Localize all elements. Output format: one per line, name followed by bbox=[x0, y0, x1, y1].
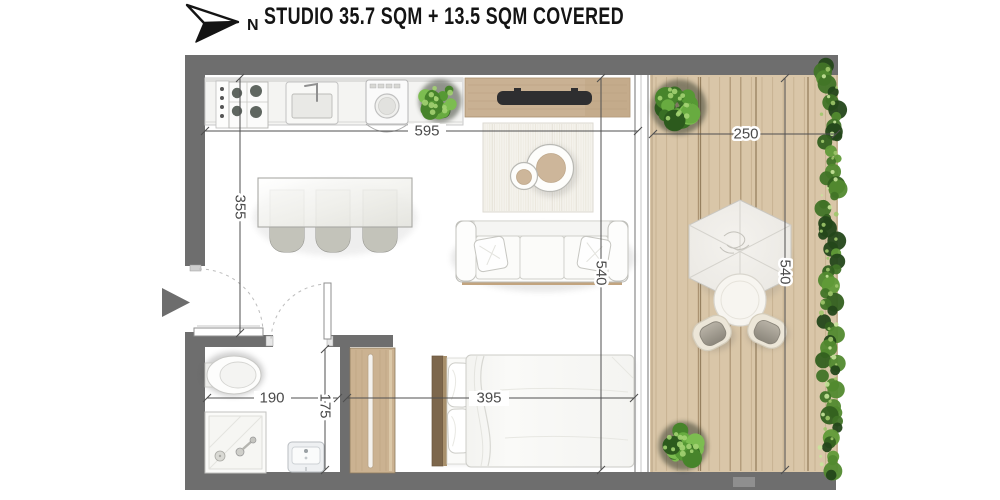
wall-bathroom-right bbox=[340, 347, 350, 472]
hedge-highlight bbox=[828, 291, 833, 296]
dim-bedroom-width: 395 bbox=[476, 390, 501, 407]
hedge-highlight bbox=[819, 310, 824, 315]
hob-knob bbox=[220, 105, 224, 109]
doors bbox=[162, 269, 331, 341]
dim-bathroom-width: 190 bbox=[259, 390, 284, 407]
terrace-glazing bbox=[635, 75, 648, 472]
plant-highlight bbox=[666, 116, 671, 121]
hedge-highlight bbox=[825, 416, 830, 421]
dim-interior-width: 595 bbox=[414, 123, 439, 140]
hedge-highlight bbox=[821, 140, 824, 143]
bathroom bbox=[202, 352, 324, 473]
bed-headboard-shelf bbox=[443, 356, 447, 466]
plant-highlight bbox=[679, 445, 685, 451]
sofa-pillow bbox=[473, 236, 508, 273]
plant-highlight bbox=[442, 105, 447, 110]
hedge-highlight bbox=[834, 377, 837, 380]
wardrobe-icon bbox=[350, 348, 395, 473]
plant-highlight bbox=[693, 444, 699, 450]
sofa-backrest bbox=[474, 221, 610, 236]
entry-door-leaf bbox=[194, 328, 263, 336]
north-arrow-lower bbox=[196, 22, 238, 42]
washbasin-icon bbox=[288, 442, 324, 472]
hedge-highlight bbox=[818, 445, 823, 450]
hedge-highlight bbox=[831, 101, 836, 106]
hedge-highlight bbox=[825, 382, 830, 387]
hob-knob bbox=[220, 87, 224, 91]
hedge-highlight bbox=[831, 157, 834, 160]
door-frame-cap bbox=[190, 265, 201, 271]
kitchen-sink-icon bbox=[286, 82, 338, 124]
plant-highlight bbox=[658, 96, 663, 101]
coffee-table-large-top bbox=[537, 154, 566, 183]
wall-top bbox=[185, 55, 838, 75]
planter bbox=[659, 422, 708, 471]
north-arrow-icon bbox=[187, 5, 238, 42]
dim-interior-depth: 540 bbox=[593, 260, 610, 285]
hedge-highlight bbox=[822, 223, 826, 227]
wardrobe-edge bbox=[389, 350, 392, 471]
hedge-highlight bbox=[820, 462, 824, 466]
bed-headboard bbox=[432, 356, 443, 466]
hob-burner bbox=[232, 88, 242, 98]
basin-faucet bbox=[304, 449, 308, 453]
hedge-highlight bbox=[826, 257, 829, 260]
hedge-highlight bbox=[835, 363, 837, 365]
hedge-highlight bbox=[835, 284, 838, 287]
hedge-foliage bbox=[818, 230, 828, 240]
hedge-foliage bbox=[822, 442, 832, 452]
hedge-foliage bbox=[826, 470, 837, 481]
plant-highlight bbox=[447, 90, 453, 96]
hob-knob bbox=[220, 114, 224, 118]
plant-highlight bbox=[672, 89, 678, 95]
hedge-highlight bbox=[834, 151, 838, 155]
dining-table-icon bbox=[258, 178, 412, 227]
hedge-highlight bbox=[831, 170, 835, 174]
wall-left-upper bbox=[185, 55, 205, 266]
dim-bathroom-depth: 175 bbox=[317, 393, 334, 418]
door-swing-arc bbox=[199, 269, 263, 333]
hedge-highlight bbox=[828, 327, 831, 330]
hedge-highlight bbox=[831, 437, 834, 440]
wall-bathroom-top bbox=[205, 335, 273, 347]
hedge-highlight bbox=[825, 249, 829, 253]
plant-highlight bbox=[422, 100, 428, 106]
plant-highlight bbox=[684, 113, 690, 119]
hedge-highlight bbox=[834, 237, 837, 240]
wall-left-lower bbox=[185, 332, 205, 490]
washing-machine-icon bbox=[366, 80, 408, 132]
hedge-highlight bbox=[833, 121, 836, 124]
hedge-highlight bbox=[826, 187, 829, 190]
bed-icon bbox=[432, 355, 634, 467]
plant-highlight bbox=[674, 432, 678, 436]
coffee-table-small-top bbox=[517, 170, 532, 185]
hedge-highlight bbox=[821, 300, 825, 304]
toilet-seat bbox=[220, 362, 256, 388]
wall-wardrobe-cap bbox=[327, 335, 393, 347]
hedge-highlight bbox=[826, 275, 829, 278]
hedge-foliage bbox=[830, 192, 839, 201]
entrance-arrow-icon bbox=[162, 288, 190, 317]
hedge-highlight bbox=[820, 230, 823, 233]
hedge-highlight bbox=[821, 194, 823, 196]
hedge-highlight bbox=[827, 95, 830, 98]
plant-highlight bbox=[667, 435, 672, 440]
hedge-highlight bbox=[822, 74, 826, 78]
hedge-highlight bbox=[826, 268, 830, 272]
hedge-highlight bbox=[826, 67, 831, 72]
door-swing-arc bbox=[271, 284, 328, 341]
door-frame-cap bbox=[266, 336, 273, 346]
north-label: N bbox=[247, 17, 259, 34]
hedge-highlight bbox=[835, 86, 838, 89]
dim-terrace-width: 250 bbox=[733, 126, 758, 143]
wall-bottom-tab bbox=[733, 477, 755, 487]
hedge-foliage bbox=[827, 306, 837, 316]
tv-body bbox=[497, 91, 592, 105]
hedge-highlight bbox=[834, 322, 839, 327]
plan-title: STUDIO 35.7 SQM + 13.5 SQM COVERED bbox=[264, 3, 624, 30]
hob-burner bbox=[250, 85, 262, 97]
plant-highlight bbox=[676, 112, 681, 117]
floor-plan-drawing: N STUDIO 35.7 SQM + 13.5 SQM COVERED bbox=[0, 0, 1000, 500]
counter-shadow bbox=[205, 78, 463, 82]
plant-highlight bbox=[434, 97, 439, 102]
sofa-cushion bbox=[520, 236, 564, 279]
hedge-highlight bbox=[820, 113, 823, 116]
plant-highlight bbox=[690, 449, 694, 453]
hedge-foliage bbox=[815, 352, 831, 368]
hedge-foliage bbox=[816, 370, 829, 383]
plant-highlight bbox=[668, 88, 672, 92]
plant-highlight bbox=[429, 92, 434, 97]
plant-highlight bbox=[430, 109, 436, 115]
header: N STUDIO 35.7 SQM + 13.5 SQM COVERED bbox=[187, 3, 624, 42]
hob-knob bbox=[220, 96, 224, 100]
shower-icon bbox=[205, 412, 266, 473]
plant-highlight bbox=[671, 447, 675, 451]
sofa-armrest bbox=[608, 221, 628, 281]
plant-highlight bbox=[683, 103, 687, 107]
kitchen-hob-icon bbox=[216, 81, 268, 128]
bedroom bbox=[350, 348, 634, 473]
hedge-foliage bbox=[830, 365, 840, 375]
plant-highlight bbox=[686, 444, 691, 449]
plant-highlight bbox=[429, 102, 435, 108]
plant-highlight bbox=[663, 446, 667, 450]
bed-duvet bbox=[466, 355, 634, 467]
sink-basin bbox=[292, 94, 332, 118]
planter bbox=[651, 79, 706, 134]
bathroom-door-leaf bbox=[324, 283, 331, 339]
plant-highlight bbox=[668, 93, 674, 99]
hedge-highlight bbox=[828, 205, 832, 209]
north-arrow-upper bbox=[187, 5, 238, 23]
hedge-highlight bbox=[829, 400, 832, 403]
wardrobe-divider bbox=[368, 354, 373, 468]
hedge-highlight bbox=[823, 427, 827, 431]
plant-highlight bbox=[680, 451, 686, 457]
dim-living-depth: 355 bbox=[232, 194, 249, 219]
dining-set bbox=[258, 178, 412, 252]
plant-foliage bbox=[664, 110, 686, 132]
hedge-highlight bbox=[819, 455, 822, 458]
plant-highlight bbox=[432, 86, 437, 91]
plant-highlight bbox=[680, 93, 685, 98]
dim-terrace-depth: 540 bbox=[777, 259, 794, 284]
hedge-highlight bbox=[824, 394, 829, 399]
hob-burner bbox=[250, 106, 262, 118]
hob-burner bbox=[232, 106, 242, 116]
plant-highlight bbox=[682, 435, 687, 440]
hedge-highlight bbox=[828, 337, 833, 342]
sofa-armrest bbox=[456, 221, 476, 281]
hedge-highlight bbox=[834, 177, 838, 181]
hedge-highlight bbox=[828, 346, 831, 349]
hedge-highlight bbox=[821, 413, 825, 417]
floor-plan-page: N STUDIO 35.7 SQM + 13.5 SQM COVERED bbox=[0, 0, 1000, 500]
hedge-highlight bbox=[834, 212, 839, 217]
hedge-highlight bbox=[831, 355, 836, 360]
